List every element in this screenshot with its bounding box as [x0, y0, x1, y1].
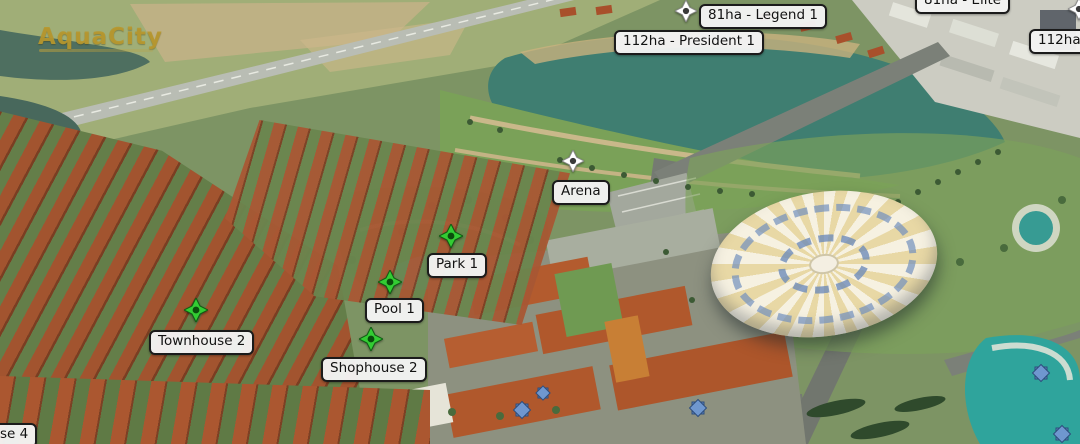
marker-townhouse-2[interactable]	[184, 298, 208, 322]
map-label-shophouse-2[interactable]: Shophouse 2	[321, 357, 427, 382]
map-label-townhouse-2[interactable]: Townhouse 2	[149, 330, 254, 355]
marker-arena[interactable]	[562, 150, 584, 172]
map-label-house-4-clipped[interactable]: se 4	[0, 423, 37, 444]
target-diamond-icon	[359, 327, 383, 351]
aquacity-logo: AquaCity	[38, 24, 163, 50]
target-diamond-icon	[439, 224, 463, 248]
star-canopy-icon	[688, 398, 708, 418]
map-label-81ha-legend-1[interactable]: 81ha - Legend 1	[699, 4, 827, 29]
target-diamond-icon	[675, 0, 697, 22]
marker-shophouse-2[interactable]	[359, 327, 383, 351]
target-diamond-icon	[184, 298, 208, 322]
target-diamond-icon	[562, 150, 584, 172]
map-label-park-1[interactable]: Park 1	[427, 253, 487, 278]
marker-park-1[interactable]	[439, 224, 463, 248]
map-label-81ha-elite[interactable]: 81ha - Elite	[915, 0, 1010, 14]
logo-tagline	[39, 49, 153, 52]
marker-pool-1[interactable]	[378, 270, 402, 294]
star-canopy-icon	[512, 400, 532, 420]
star-canopy-icon	[1030, 362, 1052, 384]
map-label-pool-1[interactable]: Pool 1	[365, 298, 424, 323]
pond-water	[1019, 211, 1053, 245]
star-canopy-icon	[534, 384, 552, 402]
target-diamond-icon	[1068, 0, 1080, 20]
map-label-112ha[interactable]: 112ha	[1029, 29, 1080, 54]
marker-112ha[interactable]	[1068, 0, 1080, 20]
target-diamond-icon	[378, 270, 402, 294]
star-canopy-icon	[1052, 424, 1072, 444]
marker-legend-1[interactable]	[675, 0, 697, 22]
map-label-arena[interactable]: Arena	[552, 180, 610, 205]
masterplan-map-viewport[interactable]: AquaCity	[0, 0, 1080, 444]
map-label-112ha-president-1[interactable]: 112ha - President 1	[614, 30, 764, 55]
